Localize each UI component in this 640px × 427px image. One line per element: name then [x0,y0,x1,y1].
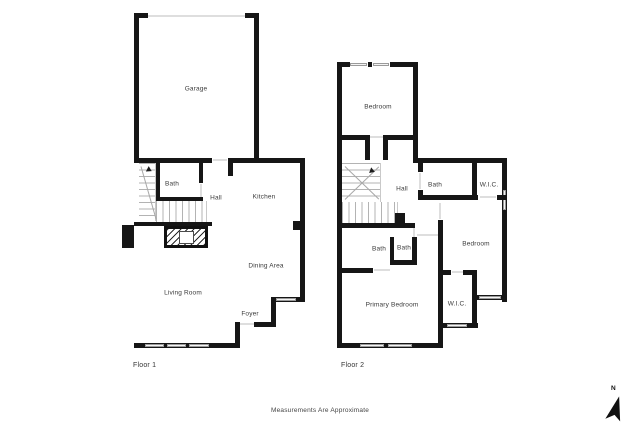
measurements-note: Measurements Are Approximate [0,407,640,414]
living-room-window [189,344,209,347]
compass: N [600,385,636,425]
wall [418,158,507,163]
wall [337,62,350,67]
entry-door-opening [240,323,254,325]
decor [605,395,626,422]
bath-door-opening [374,269,390,271]
wic-door-opening [480,196,496,198]
room-label-w-i-c: W.I.C. [480,182,499,189]
wall [463,270,474,275]
wall [390,260,417,265]
wall [418,163,423,172]
floor-2-label: Floor 2 [341,362,364,369]
wall [293,221,300,230]
room-label-hall: Hall [210,195,222,202]
north-arrow-icon [604,395,628,423]
wall [134,13,139,163]
room-label-bath: Bath [165,181,179,188]
wall [156,163,160,201]
room-label-hall: Hall [396,186,408,193]
wall [443,270,451,275]
bedroom-window [373,63,389,66]
wall [337,268,373,273]
chimney [122,225,134,248]
wall [413,62,418,163]
understair-box [179,231,194,244]
primary-bedroom-window [388,344,412,347]
wall [390,237,394,262]
bath-door-opening [419,173,421,189]
wic-door-opening [452,271,463,273]
decor [605,395,626,422]
room-label-primary-bedroom: Primary Bedroom [366,302,419,309]
wall [228,158,305,163]
wall [228,163,233,176]
wall [502,163,507,302]
room-label-w-i-c: W.I.C. [448,301,467,308]
room-label-bath: Bath [428,182,442,189]
hall-opening [417,234,438,236]
living-room-window [145,344,164,347]
room-label-living-room: Living Room [164,290,202,297]
wall [365,135,370,160]
bedroom-door-opening [370,136,383,138]
wall [412,237,417,262]
bedroom-door-opening [439,203,441,219]
room-label-garage: Garage [185,86,208,93]
room-label-bedroom: Bedroom [462,241,489,248]
wall [472,163,477,200]
wall [438,220,443,348]
wall [368,62,372,67]
bedroom-window [350,63,367,66]
wall [134,13,148,18]
foyer-window [276,298,296,301]
wall [254,13,259,163]
floor-1-label: Floor 1 [133,362,156,369]
stair-post [395,213,405,224]
bedroom-window [479,296,501,299]
wall [383,135,388,160]
room-label-dining-area: Dining Area [248,263,283,270]
wall [472,270,477,328]
room-label-kitchen: Kitchen [253,194,276,201]
room-label-foyer: Foyer [241,311,258,318]
bath-door-opening [200,184,202,197]
wall [300,158,305,302]
room-label-bath: Bath [397,245,411,252]
garage-entry-opening [213,159,227,161]
wall [418,195,478,200]
compass-n-label: N [611,385,616,392]
staircase-lower-run [156,201,207,222]
bath-door-opening [413,228,415,237]
wall [337,135,365,140]
floorplan-canvas: GarageBathHallKitchenDining AreaLiving R… [0,0,640,427]
primary-bedroom-window [360,344,384,347]
bedroom-side-window [503,190,506,210]
wall [254,322,275,327]
wall [497,195,507,200]
wic-window [447,324,467,327]
wall [388,135,418,140]
garage-door-opening [148,15,245,17]
wall [199,163,203,183]
room-label-bath: Bath [372,246,386,253]
room-label-bedroom: Bedroom [364,104,391,111]
staircase-lower-run [342,202,398,224]
living-room-window [167,344,186,347]
